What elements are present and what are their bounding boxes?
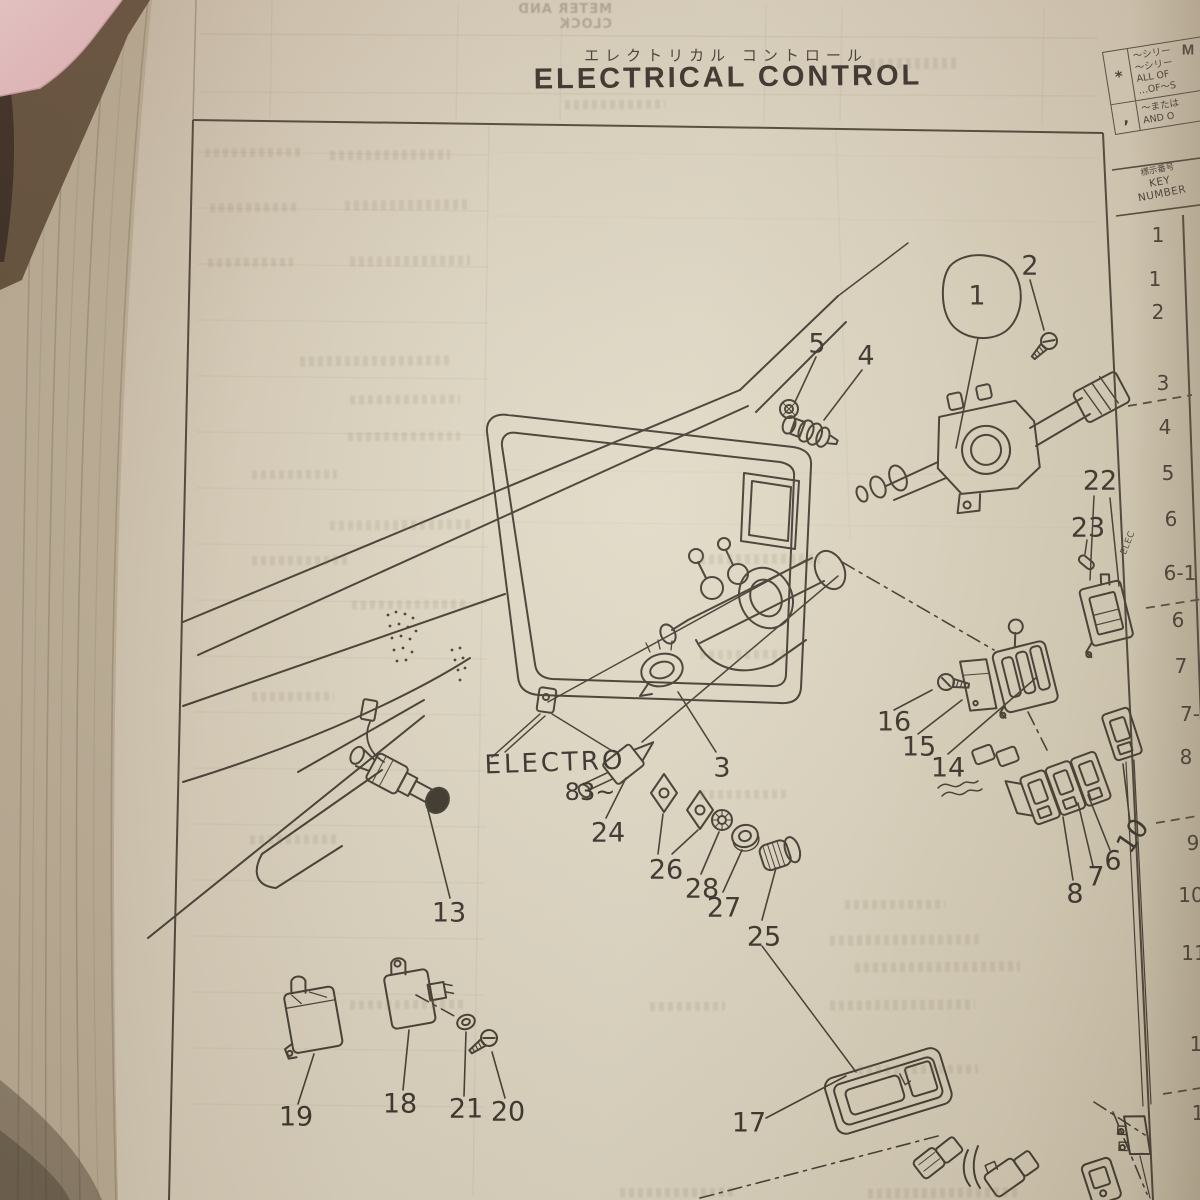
bleed-smudge bbox=[700, 650, 785, 660]
part-23-pin bbox=[1077, 554, 1095, 571]
callout-26: 26 bbox=[649, 855, 683, 886]
key-number: 1 bbox=[1192, 1101, 1200, 1125]
book-page-edges bbox=[0, 0, 152, 1200]
key-number: 10 bbox=[1178, 883, 1200, 907]
callout-21: 21 bbox=[449, 1094, 483, 1125]
bleed-smudge bbox=[208, 258, 293, 268]
part-10-switch bbox=[1101, 707, 1151, 1106]
callout-3: 3 bbox=[713, 753, 730, 784]
key-number: 6 bbox=[1172, 608, 1185, 632]
bleed-smudge bbox=[620, 1187, 735, 1197]
callout-7: 7 bbox=[1087, 862, 1104, 893]
callout-16: 16 bbox=[877, 707, 911, 738]
callout-24: 24 bbox=[591, 818, 625, 849]
part-26-diamond-washers bbox=[651, 774, 713, 854]
key-number: 7- bbox=[1180, 702, 1200, 726]
part-2-screw bbox=[1028, 330, 1061, 364]
key-number: 1 bbox=[1152, 223, 1165, 247]
bleed-smudge bbox=[870, 58, 960, 70]
callout-5: 5 bbox=[808, 329, 825, 360]
callout-28: 28 bbox=[685, 874, 719, 905]
electro-sub-label: 83~ bbox=[565, 778, 616, 806]
part-27-nut bbox=[730, 822, 762, 854]
callout-4: 4 bbox=[857, 341, 874, 372]
part-20-screw bbox=[466, 1027, 500, 1059]
part-18-relay bbox=[381, 950, 458, 1090]
bleed-smudge bbox=[300, 355, 450, 366]
part-17-bezel bbox=[762, 946, 954, 1136]
key-number: 5 bbox=[1162, 461, 1175, 485]
diagram-art bbox=[0, 0, 1200, 1200]
bleed-smudge bbox=[250, 835, 340, 845]
key-number: 8 bbox=[1180, 745, 1193, 769]
callout-17: 17 bbox=[732, 1108, 766, 1139]
bleed-smudge bbox=[700, 553, 820, 564]
key-number: 3 bbox=[1157, 371, 1170, 395]
catalog-page-photo: METER AND CLOCK エレクトリカル コントロール ELECTRICA… bbox=[0, 0, 1200, 1200]
bleed-smudge bbox=[252, 692, 334, 702]
bleed-smudge bbox=[868, 1187, 1018, 1198]
callout-18: 18 bbox=[383, 1089, 417, 1120]
bleed-smudge bbox=[650, 1002, 725, 1012]
bleed-smudge bbox=[350, 395, 460, 405]
dashboard-outline bbox=[148, 243, 908, 938]
bleed-smudge bbox=[565, 100, 665, 110]
bleed-smudge bbox=[205, 148, 300, 158]
part-15-plate bbox=[958, 655, 998, 714]
callout-13: 13 bbox=[432, 898, 466, 929]
key-number: 1 bbox=[1190, 1032, 1200, 1056]
callout-6: 6 bbox=[1104, 846, 1121, 877]
bleed-smudge bbox=[345, 199, 470, 210]
callout-19: 19 bbox=[279, 1102, 313, 1133]
key-number: 6-1 bbox=[1164, 561, 1197, 585]
bleedthrough-grid bbox=[192, 2, 1098, 1195]
page-title: ELECTRICAL CONTROL bbox=[534, 59, 923, 96]
callout-22: 22 bbox=[1083, 466, 1117, 497]
callout-1: 1 bbox=[968, 281, 985, 312]
key-number: 7 bbox=[1175, 654, 1188, 678]
bleed-smudge bbox=[830, 999, 975, 1010]
bleed-smudge bbox=[845, 900, 945, 910]
harness-connectors bbox=[912, 1112, 1152, 1200]
key-number: 9 bbox=[1187, 831, 1200, 855]
callout-25: 25 bbox=[747, 922, 781, 953]
part-19-relay bbox=[273, 971, 344, 1104]
electro-label: ELECTRO bbox=[484, 746, 626, 781]
key-number: 4 bbox=[1159, 415, 1172, 439]
bleed-smudge bbox=[252, 556, 347, 566]
part-25-knob bbox=[758, 835, 803, 872]
bleed-smudge bbox=[210, 203, 300, 213]
bleed-smudge bbox=[855, 961, 1020, 972]
bleed-smudge bbox=[330, 519, 470, 530]
small-bracket bbox=[1112, 1112, 1152, 1160]
key-number: 6 bbox=[1165, 507, 1178, 531]
bleed-smudge bbox=[350, 255, 470, 266]
bleed-smudge bbox=[330, 149, 450, 160]
part-21-washer bbox=[455, 1012, 477, 1031]
part-13-lighter bbox=[344, 699, 454, 898]
key-number: 11 bbox=[1181, 941, 1200, 965]
callout-20: 20 bbox=[491, 1097, 525, 1128]
bleed-smudge bbox=[858, 1064, 978, 1074]
callout-23: 23 bbox=[1071, 513, 1105, 544]
bleedthrough-meter-clock-text: METER AND CLOCK bbox=[462, 2, 612, 32]
bleed-smudge bbox=[252, 470, 337, 480]
diagram-frame bbox=[169, 0, 1200, 1200]
bleed-smudge bbox=[700, 790, 788, 800]
callout-8: 8 bbox=[1066, 879, 1083, 910]
key-number: 1 bbox=[1149, 267, 1162, 291]
bleed-smudge bbox=[830, 934, 980, 945]
key-number: 2 bbox=[1152, 300, 1165, 324]
bleed-smudge bbox=[350, 999, 465, 1009]
callout-2: 2 bbox=[1021, 251, 1038, 282]
part-14-bezel bbox=[979, 614, 1060, 719]
bleed-smudge bbox=[348, 432, 460, 442]
part-28-star-washer bbox=[712, 810, 732, 830]
bleed-smudge bbox=[352, 599, 467, 609]
